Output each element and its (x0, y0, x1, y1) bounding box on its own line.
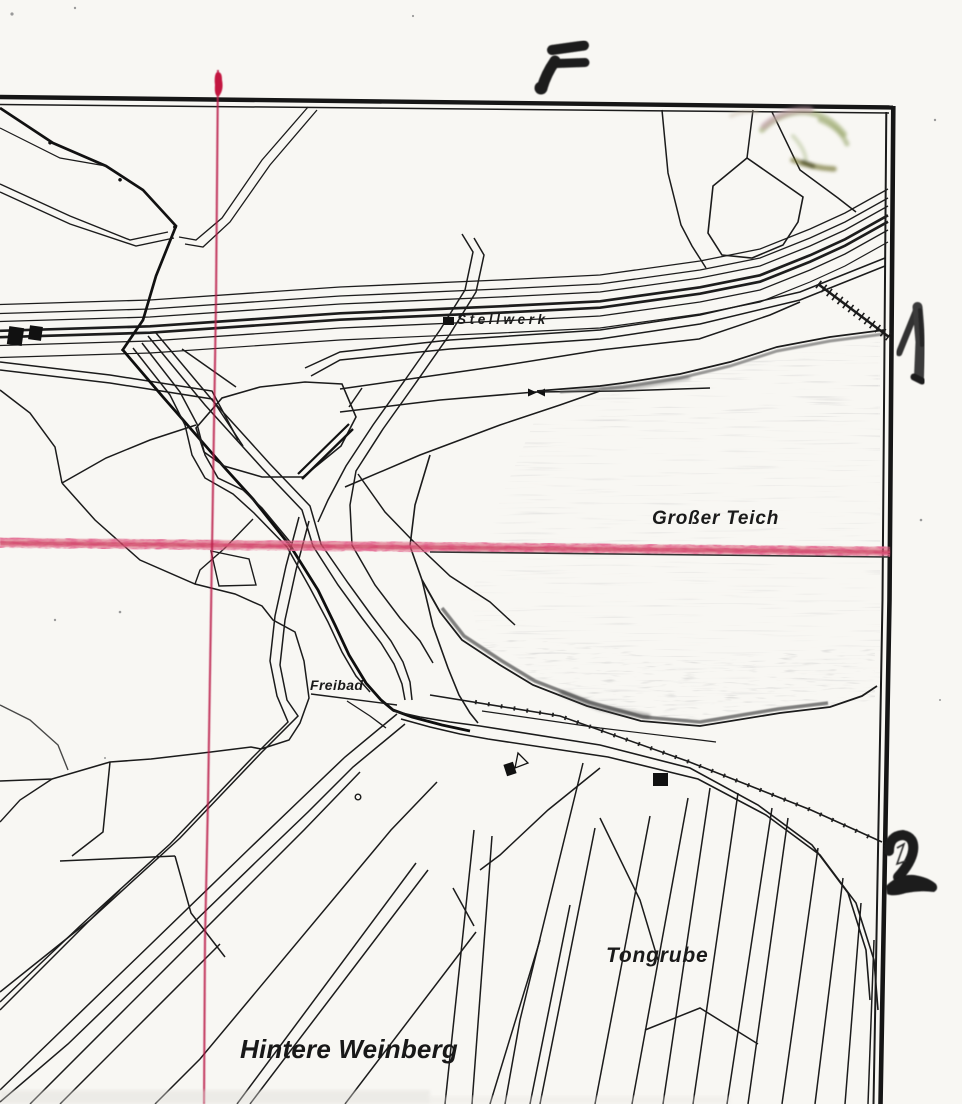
svg-text:Freibad: Freibad (310, 677, 363, 693)
svg-text:Großer Teich: Großer Teich (652, 508, 779, 529)
svg-text:Tongrube: Tongrube (606, 944, 708, 967)
svg-text:Stellwerk: Stellwerk (457, 312, 549, 327)
svg-text:Hintere Weinberg: Hintere Weinberg (240, 1034, 458, 1064)
